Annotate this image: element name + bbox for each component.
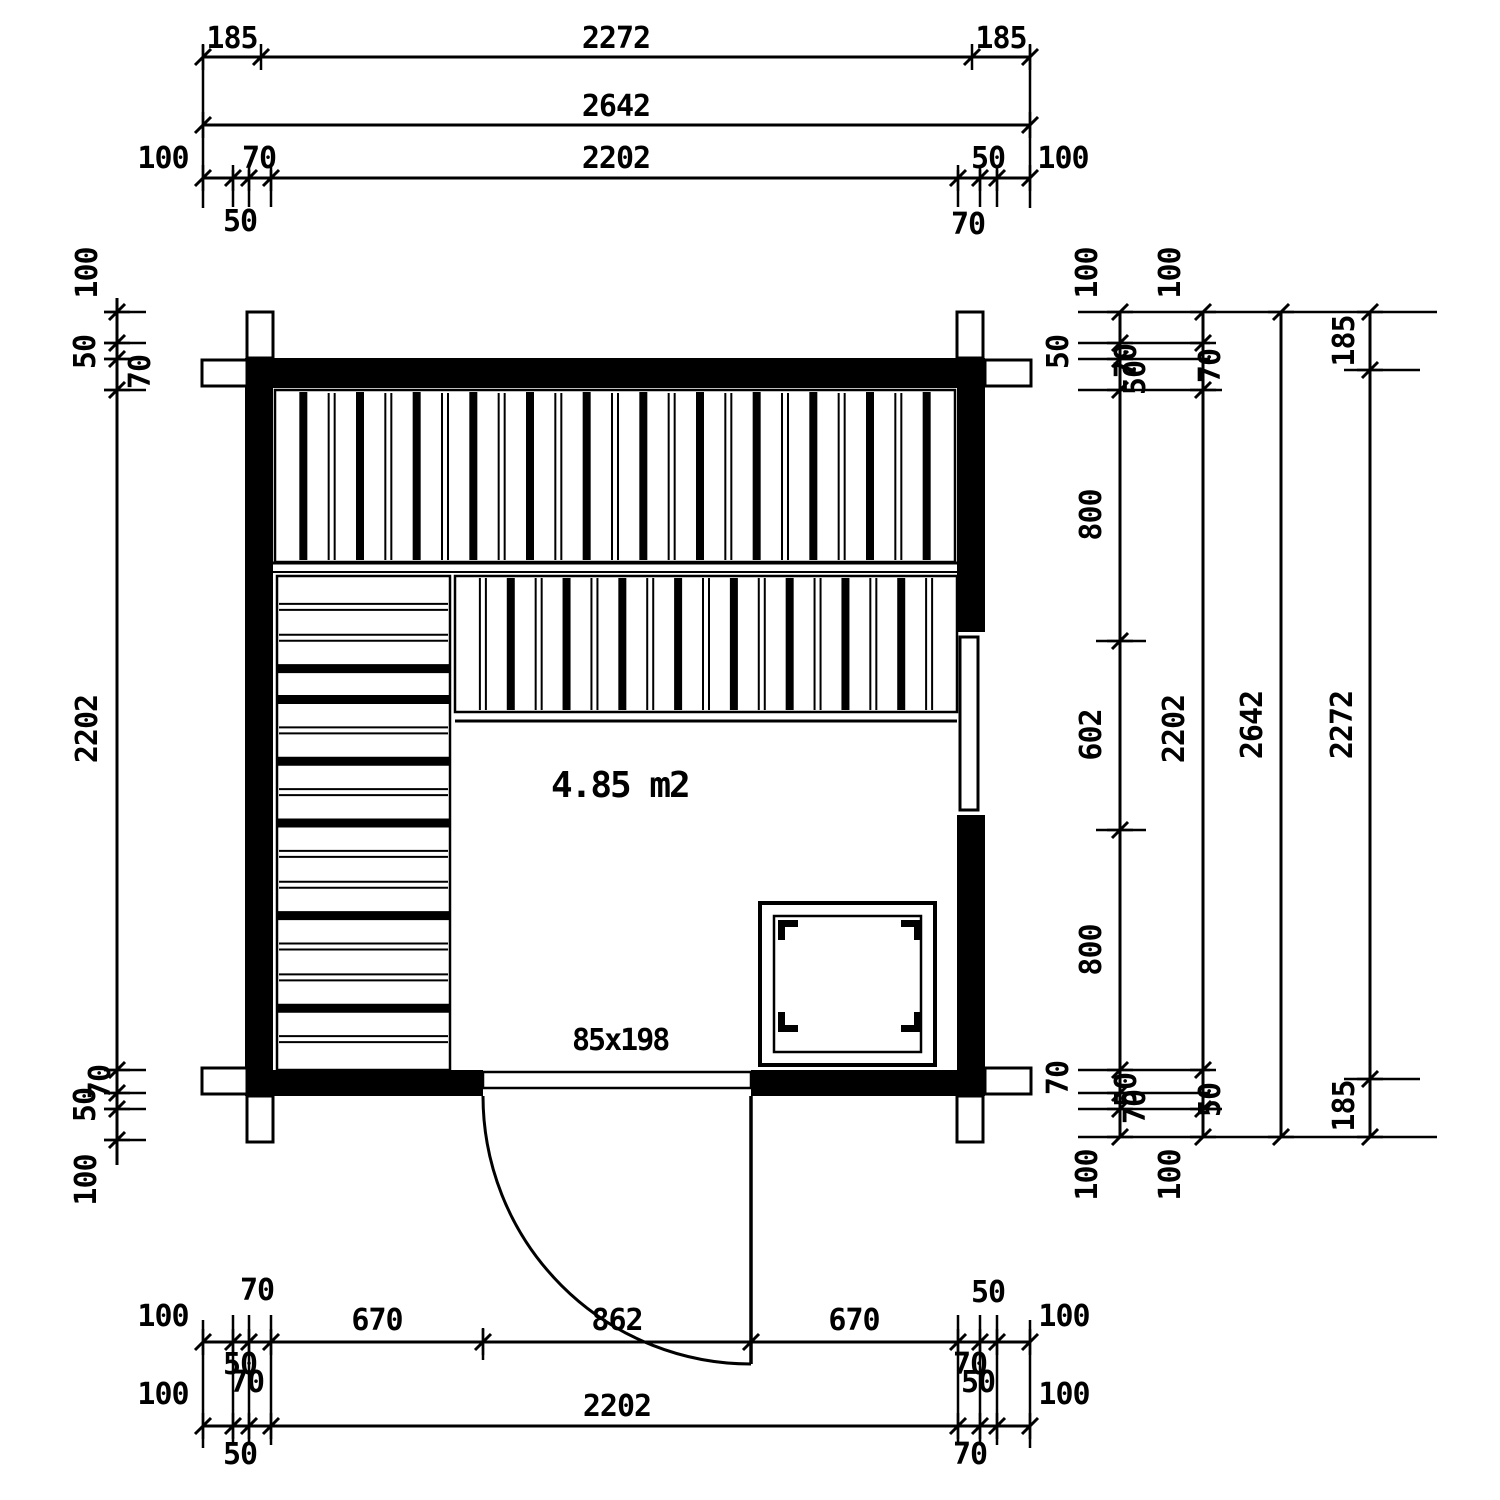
log-end <box>247 1096 273 1142</box>
dim-label: 100 <box>1038 1299 1089 1334</box>
plank-divider <box>866 392 874 560</box>
wall-bottom-left <box>245 1070 483 1096</box>
dim-label: 602 <box>1074 709 1109 760</box>
dim-label: 70 <box>240 1273 274 1308</box>
wall-right-lower <box>957 815 985 1096</box>
plank-divider <box>413 392 421 560</box>
plank-divider <box>730 578 738 710</box>
dim-label: 70 <box>230 1365 264 1400</box>
area-label: 4.85 m2 <box>551 765 689 806</box>
log-end <box>247 312 273 358</box>
log-end <box>957 1096 983 1142</box>
plank-divider <box>277 664 450 673</box>
dim-label: 50 <box>971 1275 1005 1310</box>
dim-label: 50 <box>1118 361 1153 395</box>
step-bench <box>277 576 450 1070</box>
dim-label: 100 <box>1070 1149 1105 1200</box>
dim-label: 800 <box>1074 489 1109 540</box>
dim-label: 2202 <box>582 141 650 176</box>
building: 4.85 m2 85x198 <box>202 312 1031 1364</box>
door-size-label: 85x198 <box>572 1023 669 1058</box>
dim-label: 50 <box>1193 1083 1228 1117</box>
dim-label: 800 <box>1074 924 1109 975</box>
dim-label: 100 <box>1153 1149 1188 1200</box>
dim-label: 70 <box>1041 1061 1076 1095</box>
log-end <box>985 1068 1031 1094</box>
wall-left <box>245 358 273 1096</box>
drawing-canvas: 4.85 m2 85x198 185 2272 185 2642 100 70 … <box>0 0 1500 1500</box>
dim-label: 50 <box>961 1365 995 1400</box>
plank-divider <box>618 578 626 710</box>
wall-top <box>245 358 985 388</box>
log-end <box>985 360 1031 386</box>
plank-divider <box>563 578 571 710</box>
dim-label: 70 <box>123 355 158 389</box>
dim-label: 185 <box>206 21 257 56</box>
lower-bench <box>455 576 957 721</box>
dim-label: 100 <box>137 1377 188 1412</box>
plank-divider <box>277 911 450 920</box>
plank-divider <box>277 1004 450 1013</box>
dim-label: 100 <box>1070 247 1105 298</box>
plank-divider <box>841 578 849 710</box>
log-end <box>957 312 983 358</box>
dim-label: 100 <box>137 1299 188 1334</box>
door-threshold <box>483 1072 751 1088</box>
window <box>960 637 978 810</box>
dim-label: 862 <box>591 1303 642 1338</box>
dim-label: 185 <box>1327 1080 1362 1131</box>
plank-divider <box>277 819 450 828</box>
dim-label: 2202 <box>1157 695 1192 763</box>
log-end <box>202 1068 247 1094</box>
dim-label: 100 <box>137 141 188 176</box>
stove <box>760 903 935 1065</box>
dim-label: 100 <box>70 247 105 298</box>
plank-divider <box>809 392 817 560</box>
plank-divider <box>923 392 931 560</box>
dim-label: 50 <box>223 1437 257 1472</box>
dim-label: 100 <box>69 1154 104 1205</box>
dim-label: 70 <box>242 141 276 176</box>
dim-label: 185 <box>975 21 1026 56</box>
dim-label: 50 <box>68 1088 103 1122</box>
plank-divider <box>507 578 515 710</box>
plank-divider <box>696 392 704 560</box>
plank-divider <box>356 392 364 560</box>
dim-label: 70 <box>1118 1090 1153 1124</box>
dim-label: 185 <box>1327 315 1362 366</box>
wall-right-upper <box>957 358 985 632</box>
plank-divider <box>469 392 477 560</box>
floor-plan-drawing: 4.85 m2 85x198 185 2272 185 2642 100 70 … <box>0 0 1500 1500</box>
plank-divider <box>299 392 307 560</box>
dim-label: 2202 <box>583 1389 651 1424</box>
dim-label: 100 <box>1038 1377 1089 1412</box>
log-end <box>202 360 247 386</box>
dim-label: 70 <box>951 207 985 242</box>
plank-divider <box>639 392 647 560</box>
plank-divider <box>786 578 794 710</box>
dim-label: 100 <box>1153 247 1188 298</box>
dim-label: 670 <box>351 1303 402 1338</box>
dim-label: 50 <box>971 141 1005 176</box>
dim-label: 50 <box>1041 335 1076 369</box>
plank-divider <box>897 578 905 710</box>
plank-divider <box>583 392 591 560</box>
dim-label: 50 <box>68 335 103 369</box>
wall-bottom-right <box>751 1070 985 1096</box>
dim-label: 50 <box>223 204 257 239</box>
dim-label: 2202 <box>70 695 105 763</box>
dim-label: 70 <box>953 1437 987 1472</box>
upper-bench <box>273 390 957 572</box>
dim-label: 2272 <box>582 21 650 56</box>
dim-label: 2642 <box>1235 691 1270 759</box>
dim-label: 2642 <box>582 89 650 124</box>
plank-divider <box>753 392 761 560</box>
dim-label: 670 <box>828 1303 879 1338</box>
plank-divider <box>526 392 534 560</box>
dim-label: 100 <box>1037 141 1088 176</box>
plank-divider <box>277 757 450 766</box>
plank-divider <box>277 695 450 704</box>
dim-label: 2272 <box>1325 691 1360 759</box>
plank-divider <box>674 578 682 710</box>
dim-label: 70 <box>1193 349 1228 383</box>
window-sash <box>960 637 978 810</box>
